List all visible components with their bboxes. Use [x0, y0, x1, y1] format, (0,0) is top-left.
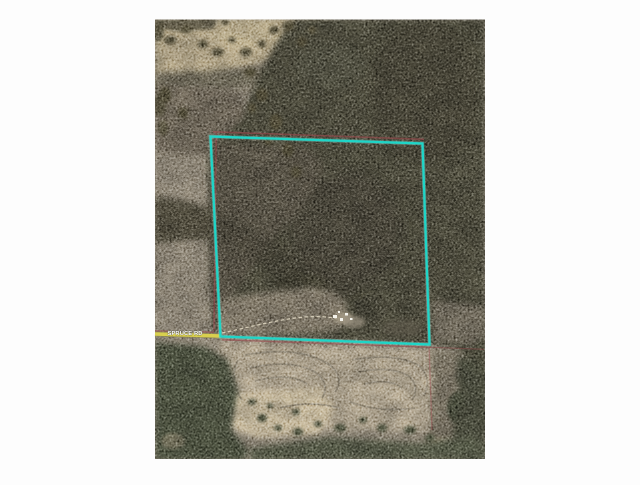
svg-text:SPRUCE RD: SPRUCE RD [168, 331, 203, 337]
